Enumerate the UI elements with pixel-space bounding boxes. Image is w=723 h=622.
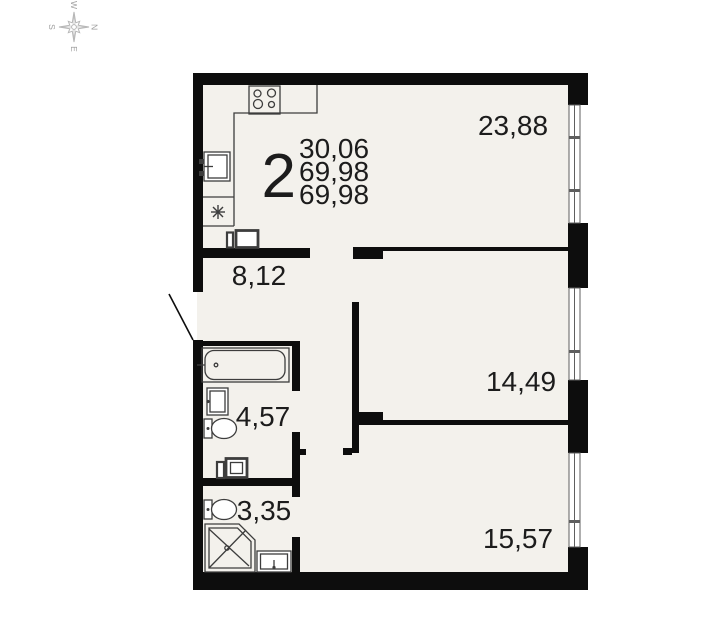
floor-plan-page: 23,88 8,12 4,57 14,49 3,35 15,57 2 30,06… [0,0,723,622]
hallway-area-label: 8,12 [232,260,287,291]
bedroom-1-area-label: 14,49 [486,366,556,397]
wall-segment [193,73,203,292]
wall-segment [203,248,310,258]
kitchen-sink-icon [199,152,230,181]
wall-segment [568,85,588,105]
wall-segment [193,73,588,85]
wall-segment [352,302,359,453]
wall-segment [300,449,306,455]
bedroom-2-area-label: 15,57 [483,523,553,554]
wall-segment [353,247,572,251]
compass-west-label: W [69,1,79,9]
hallway-cabinet-icon [227,231,258,248]
window-2 [569,288,580,380]
shower-room-area-label: 3,35 [237,495,292,526]
toilet-icon [204,419,237,439]
living-kitchen-area-label: 23,88 [478,110,548,141]
wall-segment [292,345,300,391]
apartment-summary: 2 30,06 69,98 69,98 [262,133,370,211]
washbasin-2-icon [257,551,291,572]
compass-north-label: N [90,24,100,30]
window-1 [569,105,580,223]
wall-segment [353,251,383,259]
wall-segment [353,412,383,420]
washing-machine-icon [217,459,247,479]
window-3 [569,453,580,547]
floor-plan: 23,88 8,12 4,57 14,49 3,35 15,57 2 30,06… [0,0,723,622]
entrance-door-icon [169,294,193,340]
compass-rose-icon: N E S W [47,1,100,52]
wall-segment [203,341,300,346]
wall-segment [292,537,300,575]
toilet-2-icon [204,500,237,520]
room-count-label: 2 [262,142,296,211]
wall-segment [568,547,588,572]
wall-segment [568,223,588,288]
compass-south-label: S [47,24,57,30]
wall-segment [568,380,588,453]
bathroom-area-label: 4,57 [236,401,291,432]
wall-segment [292,432,300,497]
compass-east-label: E [69,46,79,52]
wall-segment [343,448,352,455]
total-area-2-label: 69,98 [299,179,369,210]
washbasin-icon [206,388,228,415]
wall-segment [203,478,300,486]
wall-segment [353,420,572,425]
fridge-icon [211,205,225,219]
wall-segment [193,572,588,590]
